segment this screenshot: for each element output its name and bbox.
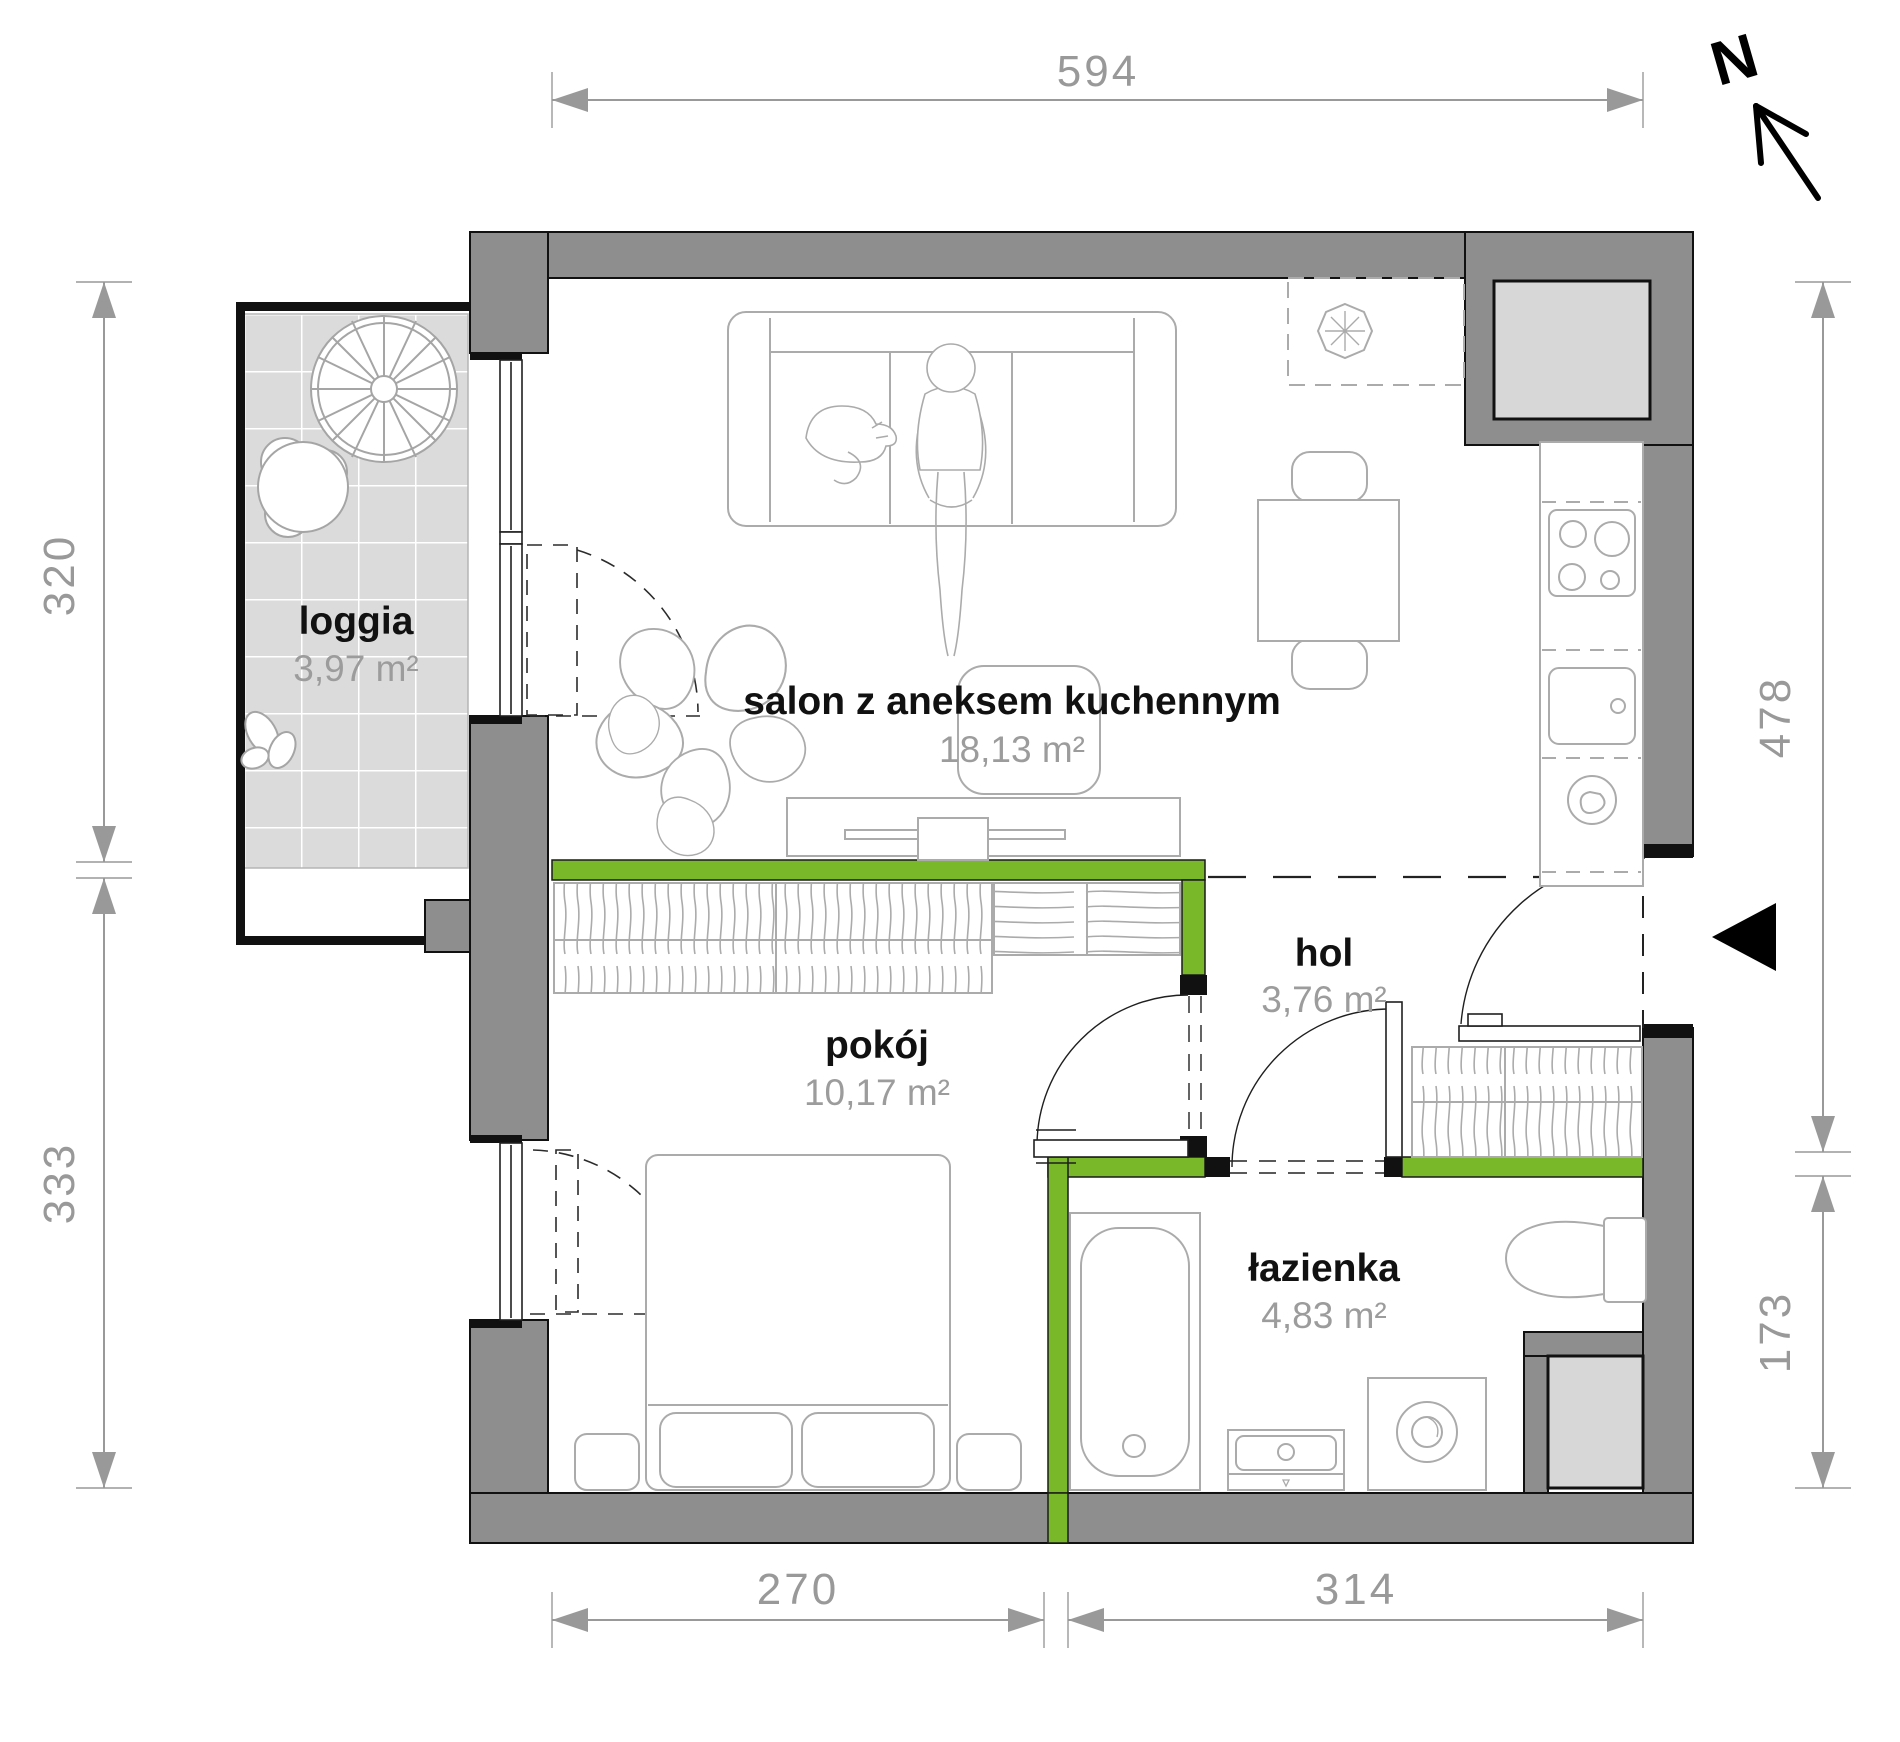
dim-left-upper: 320 <box>35 534 84 616</box>
area-lazienka: 4,83 m² <box>1261 1295 1386 1336</box>
jamb-window-salon-top <box>470 352 522 360</box>
nightstand-left-icon <box>575 1434 639 1490</box>
label-pokoj: pokój <box>825 1024 929 1067</box>
jamb-pokoj-top <box>1180 975 1207 995</box>
wall-shaft-strip-horiz-bath <box>1524 1332 1643 1356</box>
jamb-entrance-bottom <box>1643 1024 1693 1038</box>
pokoj-door-leaf <box>1034 1140 1188 1157</box>
partition-salon-pokoj <box>552 860 1205 880</box>
label-salon: salon z aneksem kuchennym <box>743 680 1281 723</box>
entrance-door-leaf <box>1459 1026 1640 1041</box>
kitchen-counter-icon <box>1540 442 1643 886</box>
dashed-pokoj-doorway <box>1189 996 1201 1136</box>
bathroom-door-swing-arc <box>1232 1009 1390 1167</box>
floor-plan: 594 320 333 478 173 270 314 loggia 3,97 … <box>0 0 1900 1742</box>
compass: N <box>1703 21 1818 198</box>
dim-bottom-left: 270 <box>757 1565 839 1614</box>
wall-bottom <box>470 1493 1693 1543</box>
partition-bath-top-left <box>1048 1157 1205 1177</box>
shaft-topright <box>1494 281 1650 419</box>
dining-set-icon <box>1258 452 1399 689</box>
partition-pokoj-hol <box>1182 880 1205 975</box>
loggia-railing-left <box>236 305 245 944</box>
jamb-window-bedroom-bottom <box>470 1320 522 1328</box>
cooktop-icon <box>1549 510 1635 596</box>
bed-icon <box>646 1155 950 1490</box>
toilet-icon <box>1506 1218 1646 1302</box>
wall-left-upper <box>470 232 548 353</box>
bathroom-door-leaf <box>1386 1002 1402 1157</box>
bathtub-icon <box>1070 1213 1200 1490</box>
dim-bottom-right: 314 <box>1315 1565 1397 1614</box>
dim-right-lower: 173 <box>1751 1291 1800 1373</box>
area-hol: 3,76 m² <box>1261 979 1386 1020</box>
window-mullion <box>500 532 522 544</box>
kitchen-appliance-icon <box>1568 776 1616 824</box>
jamb-window-bedroom-top <box>470 1135 522 1143</box>
washbasin-icon <box>1228 1430 1344 1490</box>
partition-bath-left <box>1048 1157 1068 1493</box>
dim-top: 594 <box>1057 47 1139 96</box>
area-pokoj: 10,17 m² <box>804 1072 950 1113</box>
furniture <box>554 278 1646 1490</box>
dim-right-upper: 478 <box>1751 676 1800 758</box>
entrance-marker <box>1712 903 1776 971</box>
jamb-bath-right <box>1384 1157 1402 1177</box>
nightstand-right-icon <box>957 1434 1021 1490</box>
shelf-unit-icon <box>994 883 1180 955</box>
wall-left-middle <box>470 716 548 1140</box>
wardrobe-hol-icon <box>1412 1047 1642 1157</box>
wall-right-lower <box>1643 1028 1693 1493</box>
jamb-entrance-top <box>1643 844 1693 858</box>
jamb-bath-left <box>1205 1157 1230 1177</box>
tv-cabinet-icon <box>787 798 1180 860</box>
loggia-railing-top <box>236 302 474 311</box>
kitchen-upper-cabinet-icon <box>1288 278 1464 385</box>
area-salon: 18,13 m² <box>939 729 1085 770</box>
shaft-bathroom <box>1548 1356 1643 1488</box>
washing-machine-icon <box>1368 1378 1486 1490</box>
entrance-door-hinge <box>1468 1014 1502 1026</box>
north-letter: N <box>1703 21 1765 100</box>
pokoj-door-swing-arc <box>1037 995 1188 1146</box>
parasol-icon <box>311 316 457 462</box>
partition-bath-left-through-wall <box>1048 1493 1068 1543</box>
jamb-balcony-door-bottom <box>470 716 522 724</box>
hood-asterisk <box>1325 311 1365 351</box>
label-hol: hol <box>1295 932 1353 975</box>
partition-bath-top-right <box>1402 1157 1643 1177</box>
area-loggia: 3,97 m² <box>293 648 418 689</box>
kitchen-sink-icon <box>1549 668 1635 744</box>
loggia-divider-block <box>425 900 470 952</box>
dashed-bath-doorway <box>1230 1161 1384 1173</box>
salon-plant-icon <box>582 619 815 860</box>
label-loggia: loggia <box>299 600 414 643</box>
dim-left-lower: 333 <box>35 1142 84 1224</box>
wardrobe-pokoj-icon <box>554 883 992 993</box>
label-lazienka: łazienka <box>1248 1247 1400 1290</box>
north-arrow-icon <box>1756 106 1818 198</box>
